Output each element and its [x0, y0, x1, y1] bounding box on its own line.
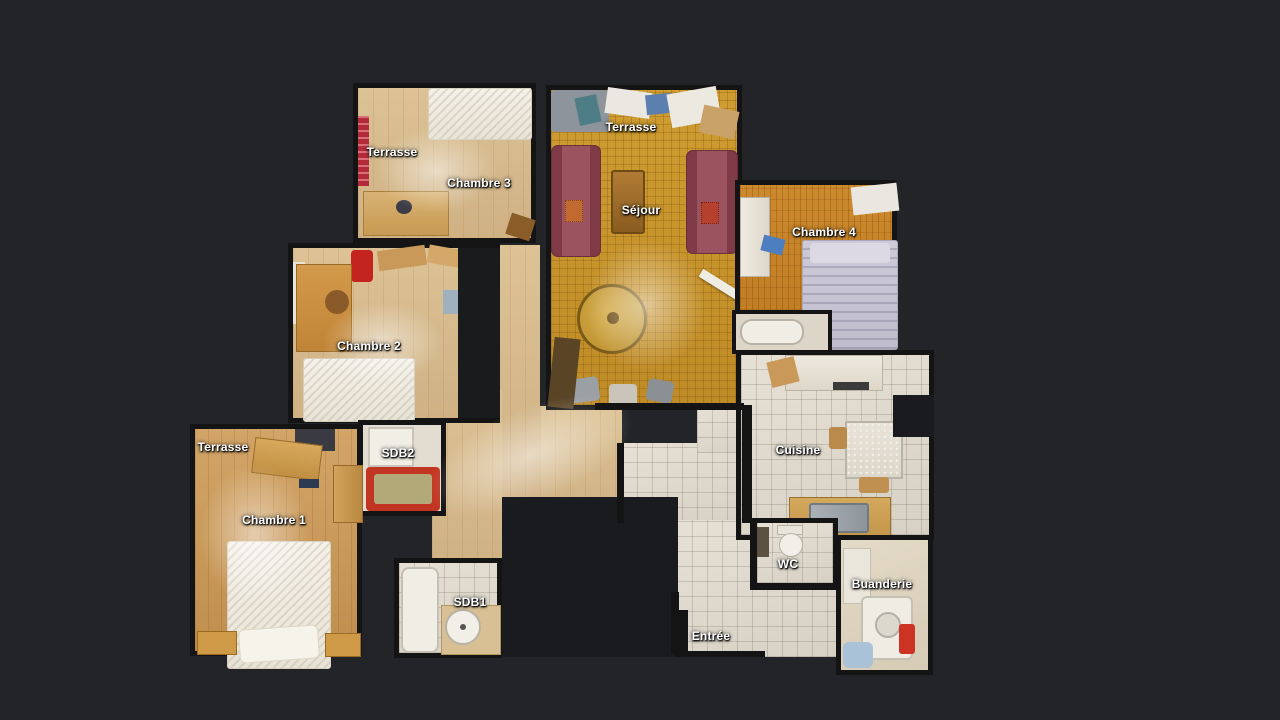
coffee-table [611, 170, 645, 234]
desk-right [333, 465, 363, 523]
room-chambre3[interactable] [353, 83, 536, 243]
room-label-buanderie: Buanderie [852, 577, 912, 591]
room-label-chambre2: Chambre 2 [337, 339, 401, 353]
dark-object [299, 479, 319, 488]
red-object [351, 250, 373, 282]
wall-entree-south [675, 651, 765, 657]
toilet [779, 533, 803, 557]
unscanned-area [502, 497, 678, 657]
bathtub [401, 567, 439, 653]
room-chambre1[interactable] [190, 424, 362, 656]
wall-hall-kitchen [742, 405, 752, 523]
pillow [238, 624, 320, 663]
wall-entree-notch [677, 610, 688, 657]
nightstand [325, 633, 361, 657]
room-label-entree: Entrée [692, 629, 731, 643]
nightstand [197, 631, 237, 655]
terrace-table [251, 437, 323, 481]
room-buanderie[interactable] [836, 535, 933, 675]
chair [396, 200, 412, 214]
wardrobe-dark [458, 248, 500, 418]
bed [428, 88, 532, 140]
chair [645, 378, 674, 404]
room-label-chambre1: Chambre 1 [242, 513, 306, 527]
stove [833, 382, 869, 390]
room-wc[interactable] [750, 518, 838, 590]
room-label-sdb1: SDB1 [454, 595, 487, 609]
red-object [899, 624, 915, 654]
room-label-wc: WC [778, 557, 798, 571]
chair [829, 427, 847, 449]
room-label-cuisine: Cuisine [776, 443, 821, 457]
shelf-dark [757, 527, 769, 557]
room-label-chambre3: Chambre 3 [447, 176, 511, 190]
pillow [810, 243, 890, 263]
laundry-blue [843, 642, 873, 668]
washer-drum [875, 612, 901, 638]
wall-hall-west [617, 443, 624, 523]
chair [325, 290, 349, 314]
room-cuisine[interactable] [736, 350, 934, 540]
wall-sejour-south [595, 403, 744, 410]
room-label-terrasse-chambre3: Terrasse [367, 145, 418, 159]
room-label-terrasse-chambre1: Terrasse [198, 440, 249, 454]
room-label-chambre4: Chambre 4 [792, 225, 856, 239]
room-label-terrasse-sejour: Terrasse [606, 120, 657, 134]
kitchen-notch-dark [893, 395, 934, 437]
side-table [505, 213, 536, 242]
sofa-cushion [565, 200, 583, 222]
bathtub [740, 319, 804, 345]
floorplan-canvas: Terrasse Chambre 3 Terrasse Séjour Chamb… [0, 0, 1280, 720]
room-chambre2[interactable] [288, 243, 500, 423]
terrace-clutter [698, 105, 739, 140]
clutter-chairs [377, 245, 427, 271]
bathtub-inner [374, 474, 432, 504]
bed [303, 358, 415, 422]
table-leg [607, 312, 619, 324]
room-label-sejour: Séjour [622, 203, 661, 217]
room-bain[interactable] [732, 310, 832, 354]
drain-dot [460, 624, 466, 630]
sofa-cushion [701, 202, 719, 224]
chair [859, 477, 889, 493]
room-sdb2[interactable] [358, 420, 446, 516]
room-label-sdb2: SDB2 [382, 446, 415, 460]
clutter-white [851, 183, 900, 216]
